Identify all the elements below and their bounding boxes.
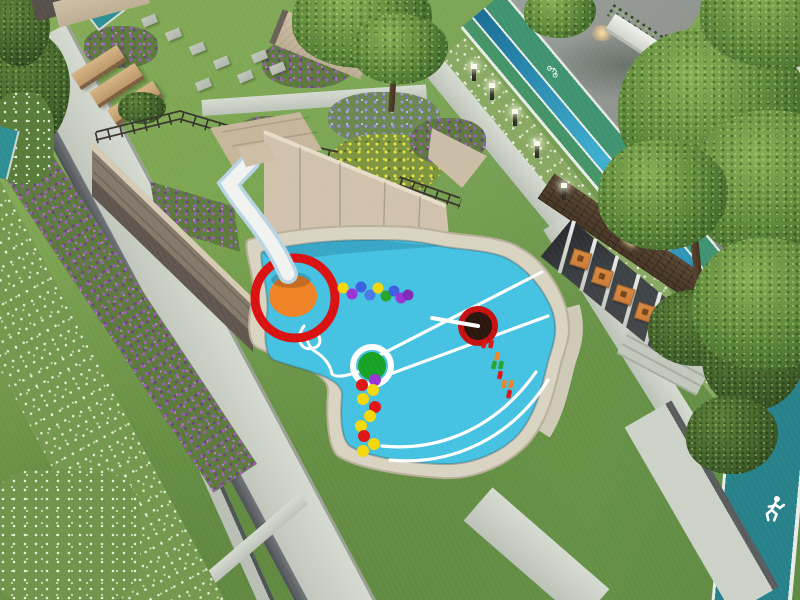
walkway-court-exit bbox=[464, 487, 610, 600]
trail-dash bbox=[488, 339, 494, 348]
slide bbox=[229, 142, 311, 288]
green-spot bbox=[358, 352, 386, 380]
stepping-stone bbox=[165, 28, 182, 42]
green-spot-ring bbox=[353, 347, 391, 385]
play-dot bbox=[364, 410, 376, 422]
bollard-light bbox=[472, 68, 476, 81]
play-dot bbox=[355, 420, 367, 432]
gravel-strip bbox=[266, 232, 350, 268]
tree-canopy bbox=[352, 14, 448, 84]
trail-dash bbox=[506, 389, 512, 398]
bollard-light bbox=[535, 145, 539, 158]
stepping-stone bbox=[195, 78, 212, 92]
play-dot bbox=[368, 438, 380, 450]
trail-dash bbox=[491, 360, 497, 369]
hedge-bush bbox=[686, 396, 778, 474]
play-dot bbox=[403, 290, 414, 301]
court-line bbox=[432, 318, 478, 326]
stepping-stone bbox=[141, 14, 158, 28]
trail-dash bbox=[481, 339, 487, 348]
play-court bbox=[246, 226, 568, 478]
play-dot bbox=[369, 374, 381, 386]
play-dot bbox=[338, 283, 349, 294]
squiggle-line bbox=[299, 326, 368, 376]
court-curve bbox=[382, 372, 536, 447]
stepping-stone bbox=[237, 70, 254, 84]
play-dot bbox=[357, 393, 369, 405]
flower-cluster bbox=[410, 118, 486, 164]
court-shadow bbox=[262, 240, 444, 263]
scene-stage bbox=[0, 0, 800, 600]
trail-dash bbox=[508, 379, 514, 388]
play-dot bbox=[369, 401, 381, 413]
trail-dash bbox=[497, 370, 503, 379]
play-dot bbox=[358, 430, 370, 442]
meadow-white-flowers bbox=[0, 470, 140, 600]
trail-dash-group bbox=[481, 339, 514, 398]
play-dot bbox=[373, 283, 384, 294]
play-dot bbox=[356, 379, 368, 391]
court-right-apron bbox=[538, 308, 569, 430]
play-dot bbox=[356, 282, 367, 293]
court-line bbox=[390, 316, 548, 374]
play-dot bbox=[389, 286, 400, 297]
arc-dot-group bbox=[338, 282, 414, 304]
stepping-stone bbox=[213, 56, 230, 70]
play-dot bbox=[381, 291, 392, 302]
play-court-border bbox=[246, 226, 568, 478]
court-curve bbox=[390, 380, 548, 461]
hedge-bush bbox=[118, 92, 166, 124]
slide-rails bbox=[229, 162, 288, 274]
trail-dash bbox=[501, 379, 507, 388]
bollard-light bbox=[513, 113, 517, 126]
runner-icon bbox=[758, 493, 788, 526]
stepping-stone bbox=[189, 42, 206, 56]
flower-cluster bbox=[238, 116, 296, 150]
slide-bed bbox=[229, 162, 288, 274]
play-dot bbox=[396, 293, 407, 304]
play-dot bbox=[347, 289, 358, 300]
column-dot-group bbox=[355, 374, 381, 457]
play-court-surface bbox=[261, 240, 555, 464]
play-dot bbox=[357, 445, 369, 457]
splash-center bbox=[269, 275, 317, 317]
bicycle-icon bbox=[545, 62, 562, 80]
court-line bbox=[378, 272, 542, 356]
tree-canopy bbox=[598, 140, 728, 250]
trail-dash bbox=[494, 351, 500, 360]
bollard-light bbox=[490, 87, 494, 100]
play-dot bbox=[367, 384, 379, 396]
bollard-light bbox=[562, 187, 566, 200]
trail-dash bbox=[498, 360, 504, 369]
play-dot bbox=[365, 290, 376, 301]
splash-ring bbox=[255, 258, 335, 338]
target-spot bbox=[461, 309, 495, 343]
